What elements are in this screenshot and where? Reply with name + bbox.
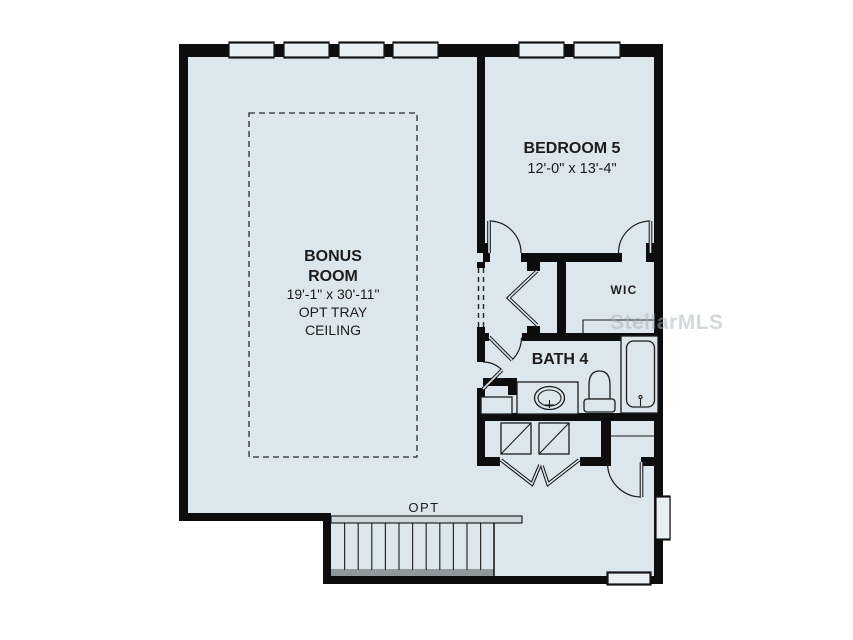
bedroom-window-2-glass <box>574 43 620 57</box>
bathtub <box>621 336 658 413</box>
wall-hall-left-mid <box>477 327 485 362</box>
wall-stair-left <box>323 513 331 584</box>
sink-vanity <box>517 382 578 414</box>
wall-wic-left <box>557 262 566 333</box>
wall-laundry-bottom-right <box>580 457 611 466</box>
watermark-text: StellarMLS <box>610 311 724 334</box>
bonus-room-note-line1: OPT TRAY <box>299 304 368 320</box>
bonus-window-4-glass <box>393 43 438 57</box>
wall-vanity-return <box>508 378 517 395</box>
bonus-room-name-line1: BONUS <box>304 248 362 265</box>
wall-laundry-bottom-left <box>477 457 500 466</box>
toilet-tank <box>584 399 615 412</box>
wall-left <box>179 44 188 521</box>
wall-bonus-bottom <box>179 513 331 521</box>
main-floor-area <box>184 50 659 518</box>
wall-bonus-bedroom-divider <box>477 57 485 253</box>
wall-hall-left-upper <box>477 262 485 268</box>
bonus-room-note-line2: CEILING <box>305 322 361 338</box>
wall-bath-top-stub <box>477 333 489 341</box>
landing-window-bottom-glass <box>608 573 650 584</box>
vestibule-cabinet <box>481 397 512 414</box>
bonus-room-dimensions: 19'-1" x 30'-11" <box>287 286 380 302</box>
wic-label: WIC <box>611 283 638 297</box>
bonus-window-2-glass <box>284 43 329 57</box>
wall-bedroom-bottom <box>521 253 622 262</box>
bonus-window-3-glass <box>339 43 384 57</box>
stair-nose-strip <box>331 569 494 576</box>
bedroom5-dimensions: 12'-0" x 13'-4" <box>527 161 616 177</box>
bonus-window-1-glass <box>229 43 274 57</box>
bath4-label: BATH 4 <box>532 351 589 368</box>
stairs-opt-label: OPT <box>408 500 439 515</box>
floor-plan-page: BONUS ROOM 19'-1" x 30'-11" OPT TRAY CEI… <box>0 0 853 640</box>
bedroom5-name: BEDROOM 5 <box>524 140 621 157</box>
bonus-room-name-line2: ROOM <box>308 268 358 285</box>
floor-plan-drawing: BONUS ROOM 19'-1" x 30'-11" OPT TRAY CEI… <box>0 0 853 640</box>
landing-window-right-glass <box>656 497 670 539</box>
stair-railing <box>331 516 522 523</box>
wall-linen-left <box>601 421 611 461</box>
closet-jamb-top <box>527 262 540 271</box>
bedroom-window-1-glass <box>519 43 564 57</box>
toilet-bowl <box>589 371 610 399</box>
closet-jamb-bottom <box>527 326 540 335</box>
